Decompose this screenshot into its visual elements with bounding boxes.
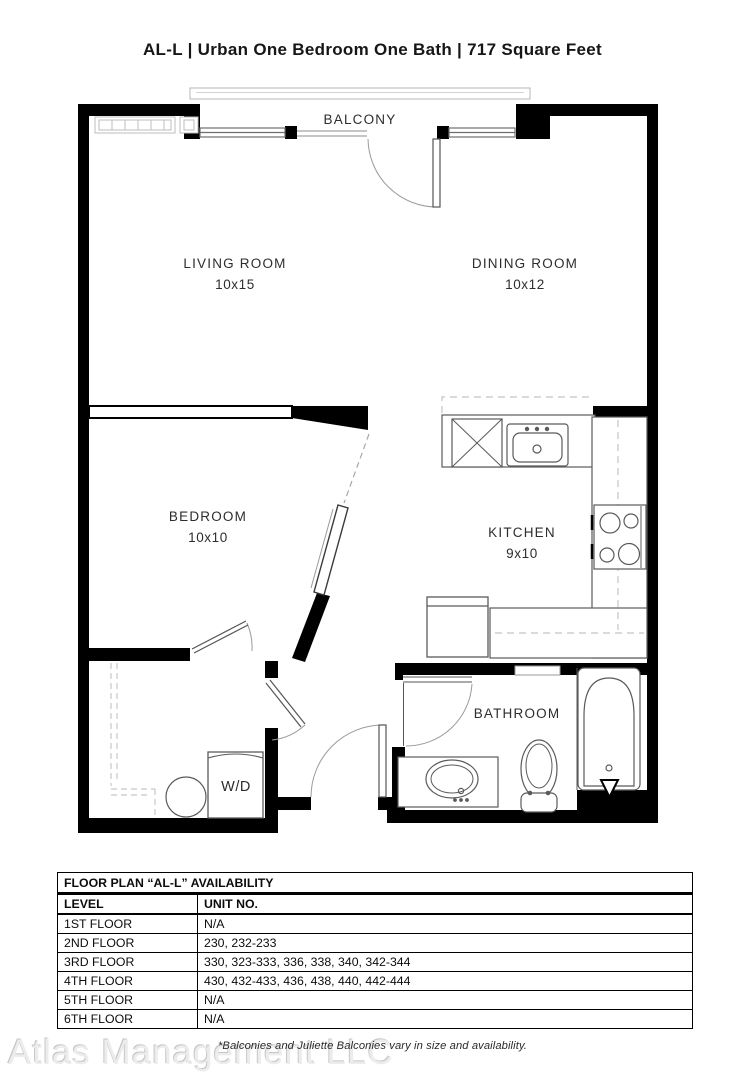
table-row: 4TH FLOOR 430, 432-433, 436, 438, 440, 4…: [58, 972, 693, 991]
table-title-row: FLOOR PLAN “AL-L” AVAILABILITY: [58, 873, 693, 894]
table-row: 1ST FLOOR N/A: [58, 914, 693, 934]
toilet: [521, 740, 557, 812]
baseboard-heater: [95, 117, 198, 133]
units-cell: 230, 232-233: [198, 934, 693, 953]
level-cell: 4TH FLOOR: [58, 972, 198, 991]
living-room-dims: 10x15: [215, 277, 255, 292]
balcony-door: [368, 139, 440, 207]
bathroom-label: BATHROOM: [474, 706, 561, 721]
water-heater: [166, 777, 206, 817]
bedroom-partition-wall: [89, 406, 292, 418]
table-row: 2ND FLOOR 230, 232-233: [58, 934, 693, 953]
floor-plan-page: AL-L | Urban One Bedroom One Bath | 717 …: [0, 0, 745, 1080]
living-room-label: LIVING ROOM: [183, 256, 286, 271]
units-cell: 330, 323-333, 336, 338, 340, 342-344: [198, 953, 693, 972]
level-cell: 5TH FLOOR: [58, 991, 198, 1010]
kitchen-sink: [507, 424, 568, 466]
availability-table: FLOOR PLAN “AL-L” AVAILABILITY LEVEL UNI…: [57, 872, 693, 1029]
entry-door: [311, 725, 386, 797]
stove: [592, 505, 646, 569]
table-row: 6TH FLOOR N/A: [58, 1010, 693, 1029]
balcony-railing: [190, 88, 530, 99]
bathroom-vanity: [398, 757, 498, 807]
units-cell: N/A: [198, 914, 693, 934]
units-cell: 430, 432-433, 436, 438, 440, 442-444: [198, 972, 693, 991]
level-cell: 1ST FLOOR: [58, 914, 198, 934]
units-cell: N/A: [198, 991, 693, 1010]
balcony-windows: [200, 128, 515, 137]
table-header-row: LEVEL UNIT NO.: [58, 894, 693, 915]
bedroom-dims: 10x10: [188, 530, 228, 545]
units-cell: N/A: [198, 1010, 693, 1029]
bedroom-door: [192, 621, 252, 653]
bathtub: [577, 668, 640, 797]
bathroom-wall-niche: [515, 666, 560, 675]
table-row: 3RD FLOOR 330, 323-333, 336, 338, 340, 3…: [58, 953, 693, 972]
dining-room-dims: 10x12: [505, 277, 545, 292]
watermark: Atlas Management LLC: [8, 1033, 394, 1073]
refrigerator: [427, 597, 488, 657]
bathroom-door: [403, 677, 472, 746]
level-cell: 2ND FLOOR: [58, 934, 198, 953]
col-header-level: LEVEL: [58, 894, 198, 915]
balcony-label: BALCONY: [324, 112, 397, 127]
footnote: *Balconies and Juliette Balconies vary i…: [0, 1040, 745, 1052]
kitchen-label: KITCHEN: [488, 525, 556, 540]
closet-shelving-dashed: [111, 663, 155, 817]
level-cell: 6TH FLOOR: [58, 1010, 198, 1029]
washer-dryer-label: W/D: [221, 779, 251, 795]
col-header-unit-no: UNIT NO.: [198, 894, 693, 915]
kitchen-dims: 9x10: [506, 546, 538, 561]
bedroom-label: BEDROOM: [169, 509, 247, 524]
table-row: 5TH FLOOR N/A: [58, 991, 693, 1010]
dining-room-label: DINING ROOM: [472, 256, 578, 271]
table-title: FLOOR PLAN “AL-L” AVAILABILITY: [58, 873, 693, 894]
level-cell: 3RD FLOOR: [58, 953, 198, 972]
walls: [78, 104, 658, 833]
bedroom-sliding-door: [311, 434, 369, 595]
